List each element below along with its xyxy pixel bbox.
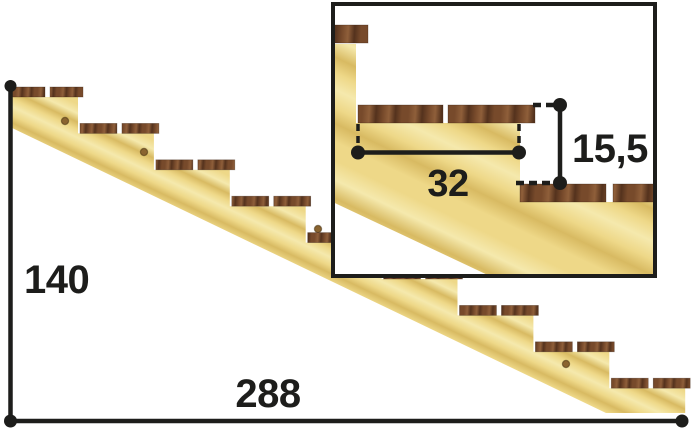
dimension-dot (4, 415, 17, 428)
tread-board (198, 160, 235, 170)
tread-board (577, 342, 614, 352)
tread-board (535, 342, 572, 352)
tread-board (501, 305, 538, 315)
stair-dimension-diagram: 140 288 32 15,5 (0, 0, 697, 429)
dimension-dot (512, 146, 526, 160)
tread-board (232, 196, 269, 206)
tread-board (50, 87, 83, 97)
tread-board (613, 184, 675, 202)
diagram-canvas: 140 288 32 15,5 (0, 0, 697, 429)
wood-knot (61, 117, 68, 124)
wood-knot (562, 360, 569, 367)
dimension-dot (553, 98, 567, 112)
tread-board (460, 305, 497, 315)
tread-board (448, 105, 535, 123)
tread-board (653, 378, 690, 388)
tread-board (156, 160, 193, 170)
dimension-dot (5, 80, 17, 92)
tread-board (274, 196, 311, 206)
tread-depth-value: 32 (427, 163, 468, 205)
riser-height-value: 15,5 (572, 127, 648, 171)
tread-board (80, 123, 117, 133)
dimension-dot (351, 146, 365, 160)
total-rise-value: 140 (24, 258, 89, 302)
tread-board (12, 87, 45, 97)
tread-board (358, 105, 443, 123)
wood-knot (314, 225, 321, 232)
tread-board (122, 123, 159, 133)
total-run-value: 288 (235, 372, 300, 416)
wood-knot (140, 148, 147, 155)
dimension-dot (553, 176, 567, 190)
tread-board (611, 378, 648, 388)
dimension-dot (676, 415, 689, 428)
